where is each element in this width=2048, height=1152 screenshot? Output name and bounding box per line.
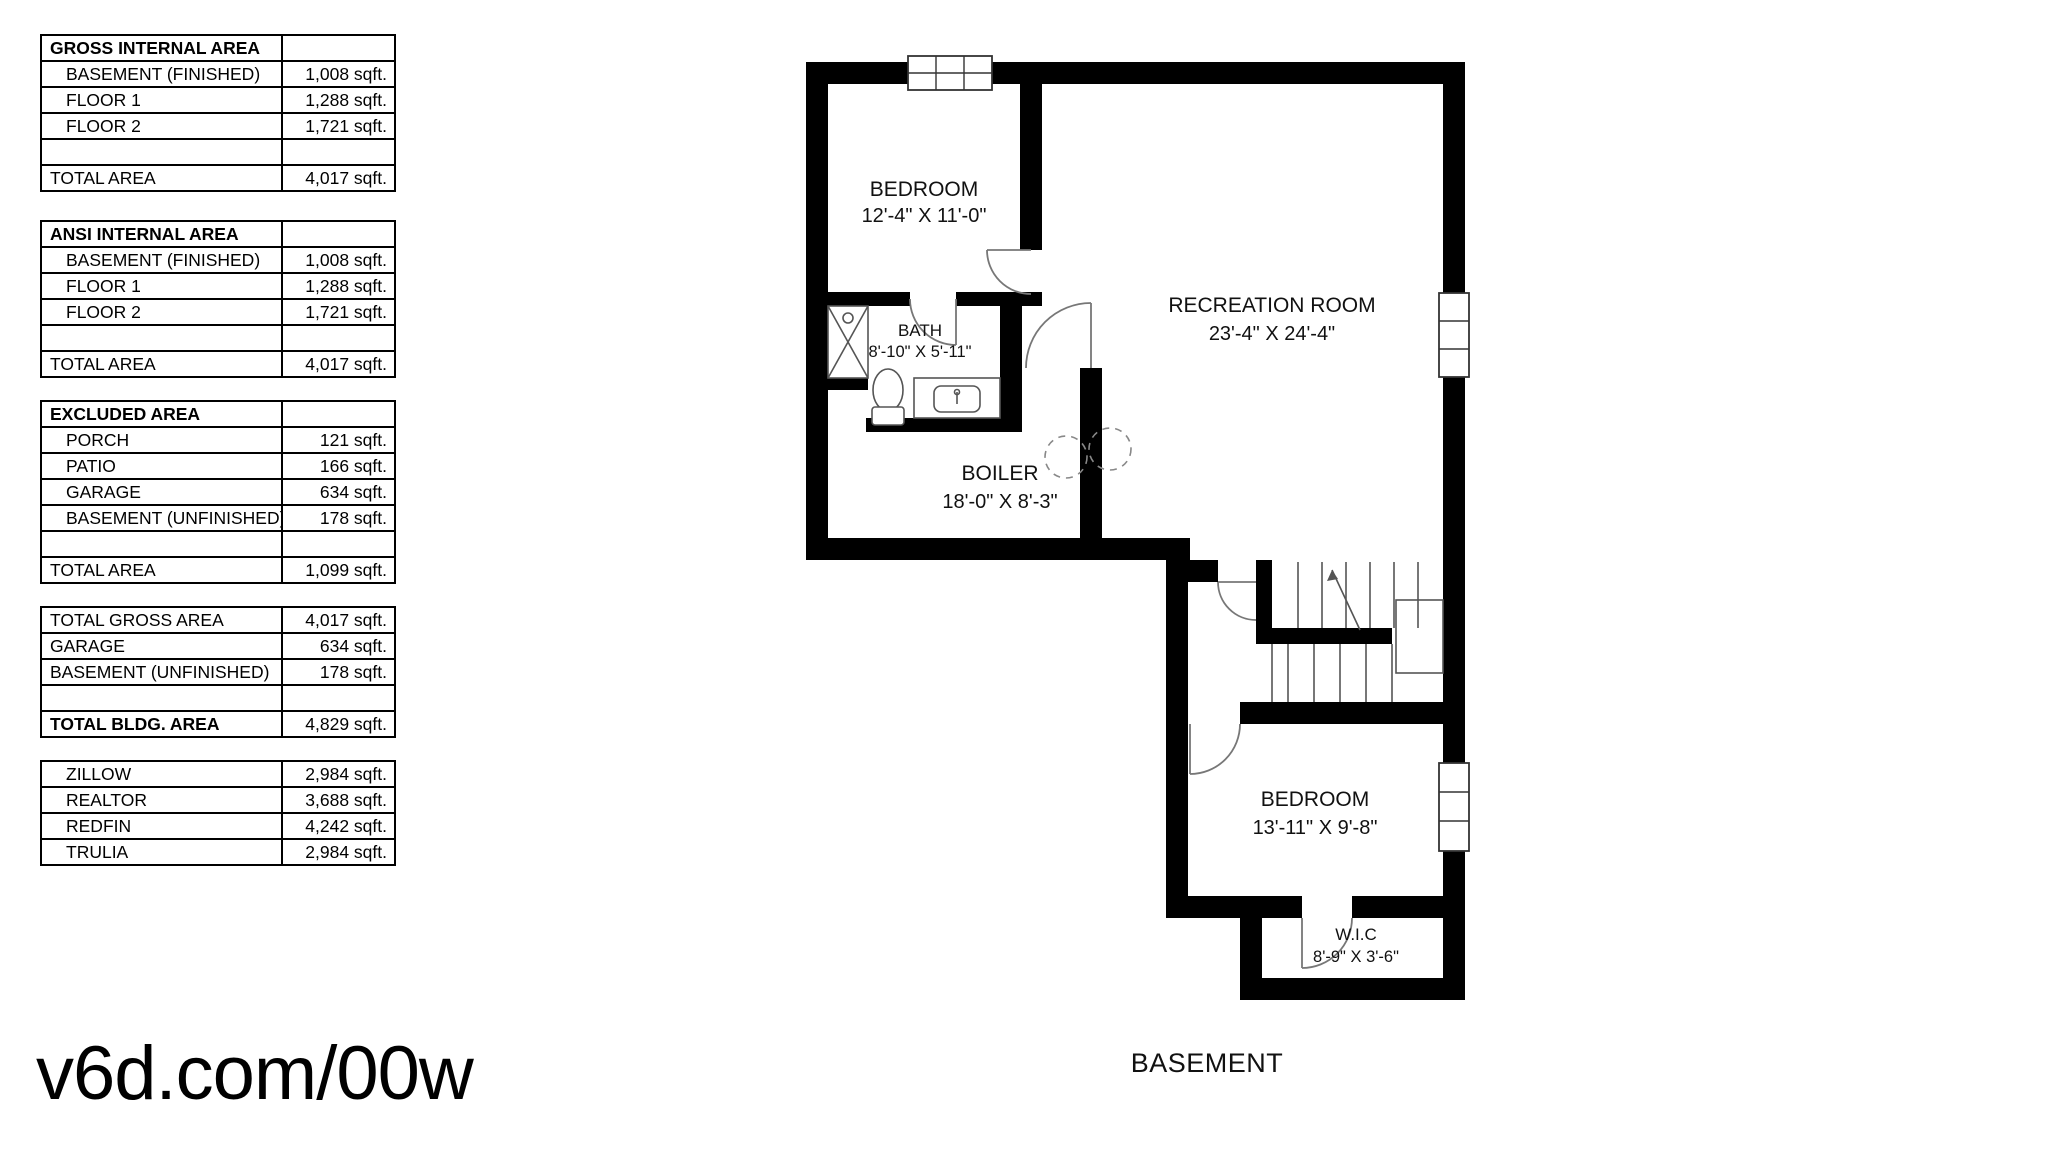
stair-direction-arrow xyxy=(1327,570,1360,630)
window-bedroom-right xyxy=(1439,763,1469,851)
basement-floor-plan: BEDROOM 12'-4" X 11'-0" RECREATION ROOM … xyxy=(0,0,2048,1152)
door-bedroom-upper xyxy=(987,250,1031,294)
room-dims-bath: 8'-10" X 5'-11" xyxy=(868,343,971,361)
door-stair-hall xyxy=(1218,582,1256,620)
window-recreation-right xyxy=(1439,293,1469,377)
room-label-bedroom-upper: BEDROOM xyxy=(870,178,979,201)
room-label-bath: BATH xyxy=(898,321,942,340)
floor-plan-page: GROSS INTERNAL AREA BASEMENT (FINISHED) … xyxy=(0,0,2048,1152)
stair-void-outline xyxy=(1396,600,1443,673)
plan-title: BASEMENT xyxy=(1131,1048,1284,1078)
room-dims-wic: 8'-9" X 3'-6" xyxy=(1313,948,1399,966)
room-dims-bedroom-upper: 12'-4" X 11'-0" xyxy=(862,205,987,227)
watermark-url: v6d.com/00w xyxy=(36,1030,473,1117)
toilet xyxy=(872,369,904,425)
room-labels: BEDROOM 12'-4" X 11'-0" RECREATION ROOM … xyxy=(862,178,1400,966)
window-top xyxy=(908,56,992,90)
room-dims-recreation: 23'-4" X 24'-4" xyxy=(1209,323,1335,345)
room-label-boiler: BOILER xyxy=(961,462,1038,485)
room-label-bedroom-lower: BEDROOM xyxy=(1261,788,1370,811)
door-hall xyxy=(1026,303,1091,368)
walls xyxy=(806,62,1465,1000)
shower xyxy=(828,306,868,378)
room-label-wic: W.I.C xyxy=(1335,925,1377,944)
door-bedroom-lower xyxy=(1190,724,1240,774)
room-label-recreation: RECREATION ROOM xyxy=(1168,294,1375,317)
room-dims-bedroom-lower: 13'-11" X 9'-8" xyxy=(1253,817,1378,839)
room-dims-boiler: 18'-0" X 8'-3" xyxy=(942,491,1057,513)
sink-vanity xyxy=(914,378,1000,418)
